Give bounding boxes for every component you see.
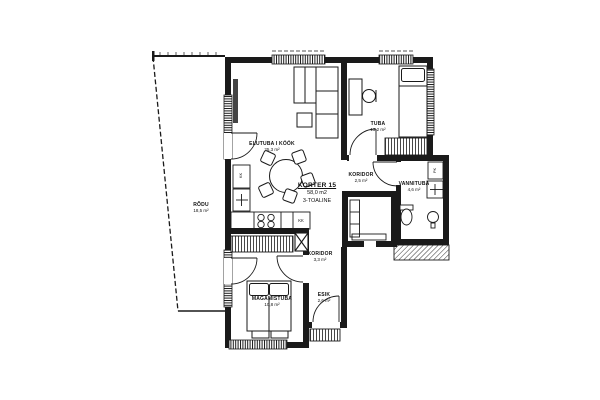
window-living-top [272,55,325,64]
room-label-koridor-upper: KORIDOR 2,5 m² [348,172,373,184]
shower-drain [428,212,439,229]
door-bathroom [373,162,397,186]
room-label-rodu: RÕDU 18,5 m² [193,202,209,214]
desk-chair [362,90,376,103]
room-area: 2,5 m² [355,178,368,184]
door-bedroom-balcony [231,258,257,284]
bedroom-furniture [247,281,291,338]
room-area: 2,6 m² [318,298,331,304]
shaft-box [295,233,308,251]
room-label-living: ELUTUBA I KÖÖK 25,3 m² [249,141,295,153]
room-area: 10,8 m² [264,302,279,308]
wardrobe-bedroom [231,236,293,252]
room-area: 13,2 m² [370,127,385,133]
room-label-tuba: TUBA 13,2 m² [370,121,385,133]
room-area: 25,3 m² [264,147,279,153]
doormat [310,329,340,341]
bed-bench [271,331,288,338]
window-bedroom-bottom [229,340,287,349]
apartment-room-count: 3-TOALINE [303,198,331,205]
wardrobe-tuba [385,138,427,155]
washer-label: PK [432,168,437,173]
apartment-title-block: KORTER 15 58,0 m2 3-TOALINE [298,182,336,205]
room-label-esik: ESIK 2,6 m² [318,292,331,304]
room-label-magamistuba: MAGAMISTUBA 10,8 m² [252,296,292,308]
sauna [342,191,397,247]
apartment-number: KORTER 15 [298,182,336,190]
tv-unit [233,79,238,123]
room-label-koridor-lower: KORIDOR 3,3 m² [307,251,332,263]
room-area: 4,6 m² [408,187,421,193]
apartment-total-area: 58,0 m2 [307,190,327,197]
fridge-label: KK [238,173,243,178]
toilet [400,205,413,225]
counter-label: KK [298,218,304,223]
door-bedroom [277,256,303,282]
sink [233,189,250,211]
balcony-railing [152,51,225,311]
stove [258,214,274,227]
room-area: 18,5 m² [193,208,208,214]
sauna-door-gap [364,241,376,247]
room-area: 3,3 m² [314,257,327,263]
floor-plan: ELUTUBA I KÖÖK 25,3 m² TUBA 13,2 m² KORI… [0,0,600,400]
single-bed [399,66,427,137]
window-tuba-top [379,55,413,64]
tuba-furniture [349,66,427,137]
coffee-table [297,113,312,127]
desk [349,79,362,115]
room-label-vannituba: VANNITUBA 4,6 m² [399,181,430,193]
bed-bench [252,331,269,338]
neighbor-wall-hatch [394,245,449,260]
door-tuba [350,129,376,155]
